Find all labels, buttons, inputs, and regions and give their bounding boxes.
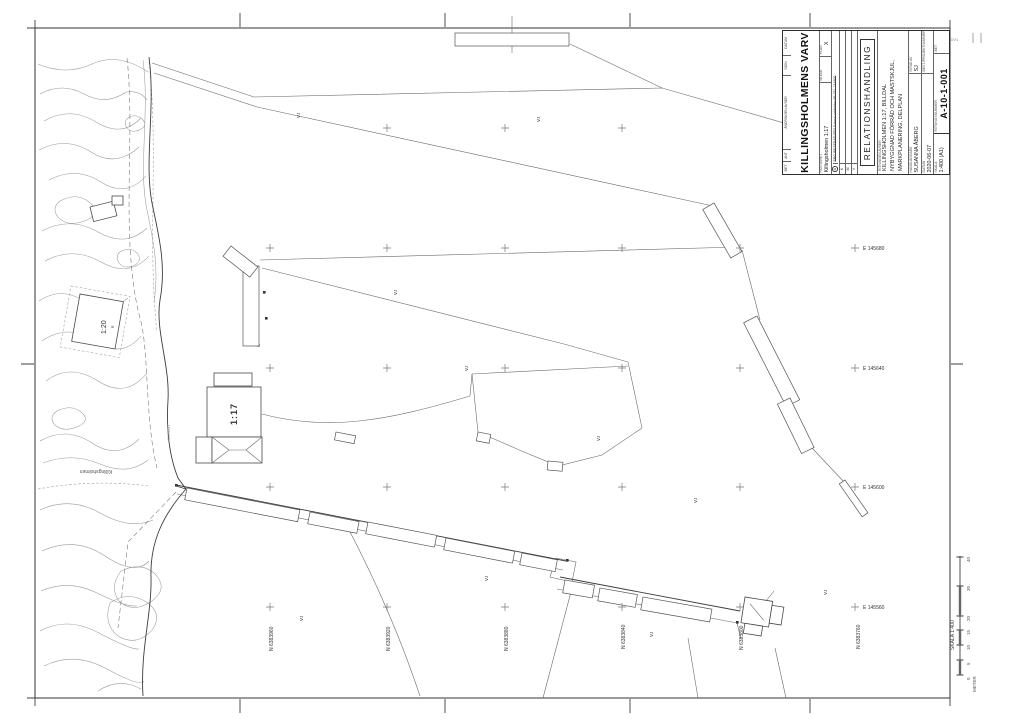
scale-tick-20: 20: [966, 615, 971, 621]
scale-tick-40: 40: [966, 556, 971, 562]
grid-label-e-145680: E 145680: [863, 246, 885, 252]
plan-value: X: [824, 33, 830, 55]
plan-cell: PLAN X: [820, 31, 831, 57]
vj-marker: VJ: [823, 590, 828, 595]
vj-marker: VJ: [693, 498, 698, 503]
grid-label-e-145600: E 145600: [863, 485, 885, 491]
bet-label: BET: [935, 33, 939, 52]
project-number-cell: BEST./PROJEKTNUMMER: [922, 31, 933, 74]
drawing-title-line-3: MARKPLANERING, DELPLAN: [898, 34, 906, 171]
pontoons: [703, 203, 868, 517]
rev-col-ant: ANT: [783, 150, 791, 162]
grid-label-n-6383920: N 6383920: [386, 626, 392, 651]
scale-bar-unit: METER: [972, 675, 977, 692]
grid-label-n-6383760: N 6383760: [856, 624, 862, 649]
grid-label-e-145560: E 145560: [863, 605, 885, 611]
revision-header: BET ANT ÄNDRINGEN AVSER SIGN DATUM: [783, 31, 791, 174]
revision-a-letter: A: [832, 166, 838, 172]
grid-label-n-6383840: N 6383840: [621, 624, 627, 649]
grid-label-n-6383800: N 6383800: [739, 625, 745, 650]
parcel-label-1-17: 1:17: [229, 403, 239, 425]
vj-markers: VJ VJ VJ VJ VJ VJ VJ VJ VJ VJ: [296, 113, 828, 637]
contour-lines: [38, 60, 161, 692]
scale-tick-5: 5: [966, 662, 971, 665]
drawn-by-cell: RITAD AV SJ: [909, 31, 921, 74]
survey-note: ML 0517: [166, 424, 171, 440]
drawing-status: RELATIONSHANDLING: [860, 39, 875, 166]
property-cell: FASTIGHET Killingsholmen 1:17: [820, 83, 831, 174]
date-value: 2020-06-07: [927, 76, 933, 173]
handler-cell: HANDLÄGGARE SUSANNA ÅBERG: [909, 74, 921, 174]
vj-marker: VJ: [536, 117, 541, 122]
stage-cell: SKEDE: [820, 57, 831, 84]
vj-marker: VJ: [296, 113, 301, 118]
building-1-20: [72, 294, 124, 349]
rev-col-datum: DATUM: [783, 31, 791, 56]
bet-cell: BET: [934, 31, 949, 54]
handler-value: SUSANNA ÅBERG: [914, 76, 920, 173]
drawing-page: LKS KIDV1: [0, 0, 1024, 724]
drawing-number-cell: RITNINGSNUMMER A-10-1-001: [934, 54, 949, 134]
drawing-title-block: RITNINGEN AVSER KILLINGSHOLMEN 1:17, BIL…: [877, 31, 909, 174]
project-number-label: BEST./PROJEKTNUMMER: [923, 33, 927, 72]
vj-marker: VJ: [484, 576, 489, 581]
title-block: BET ANT ÄNDRINGEN AVSER SIGN DATUM KILLI…: [782, 30, 950, 175]
vj-marker: VJ: [596, 436, 601, 441]
scale-tick-15: 15: [966, 629, 971, 635]
rev-col-sign: SIGN: [783, 56, 791, 76]
scale-tick-10: 10: [966, 644, 971, 650]
drawing-title-line-2: NYBYGGNAD FÖRRÅD OCH MASTSKJUL,: [890, 34, 898, 171]
terminal-structure: [739, 591, 784, 639]
parcel-label-1-20: 1:20: [101, 320, 108, 334]
revision-a-text: PROJEKTERAD FFU Kanozi arkitekter AB 031…: [833, 76, 837, 162]
rev-col-andringen: ÄNDRINGEN AVSER: [783, 76, 791, 150]
vj-marker: VJ: [649, 632, 654, 637]
scale-tick-30: 30: [966, 585, 971, 591]
vj-marker: VJ: [464, 366, 469, 371]
grid-label-e-145640: E 145640: [863, 366, 885, 372]
stage-label: SKEDE: [820, 58, 824, 81]
drawn-by-value: SJ: [914, 33, 920, 72]
grid-label-n-6383880: N 6383880: [504, 626, 510, 651]
vj-marker: VJ: [393, 290, 398, 295]
revision-a-letter-cell: A: [832, 164, 838, 174]
rev-col-bet: BET: [783, 162, 791, 174]
scale-bar-title: SKALA 1:400: [950, 620, 956, 650]
scale-value: 1:400 (A1): [939, 136, 945, 173]
shoreline: [143, 57, 186, 696]
water-name-label: Killingsholmen: [80, 468, 112, 474]
berth-rows: [185, 33, 712, 622]
scale-bar: 0 5 10 15 20 30 40 SKALA 1:400 METER: [950, 556, 977, 692]
grid-label-n-6383960: N 6383960: [269, 626, 275, 651]
scale-tick-0: 0: [966, 677, 971, 680]
revision-a-text-cell: PROJEKTERAD FFU Kanozi arkitekter AB 031…: [833, 31, 838, 164]
scale-cell: SKALA 1:400 (A1): [934, 134, 949, 174]
company-name: KILLINGSHOLMENS VARV: [791, 31, 819, 174]
vj-marker: VJ: [299, 616, 304, 621]
drawing-title-line-1: KILLINGSHOLMEN 1:17, BILLDAL: [882, 34, 890, 171]
property-value: Killingsholmen 1:17: [824, 85, 830, 173]
date-cell: DATUM 2020-06-07: [922, 74, 933, 174]
drawing-number-value: A-10-1-001: [939, 56, 949, 132]
